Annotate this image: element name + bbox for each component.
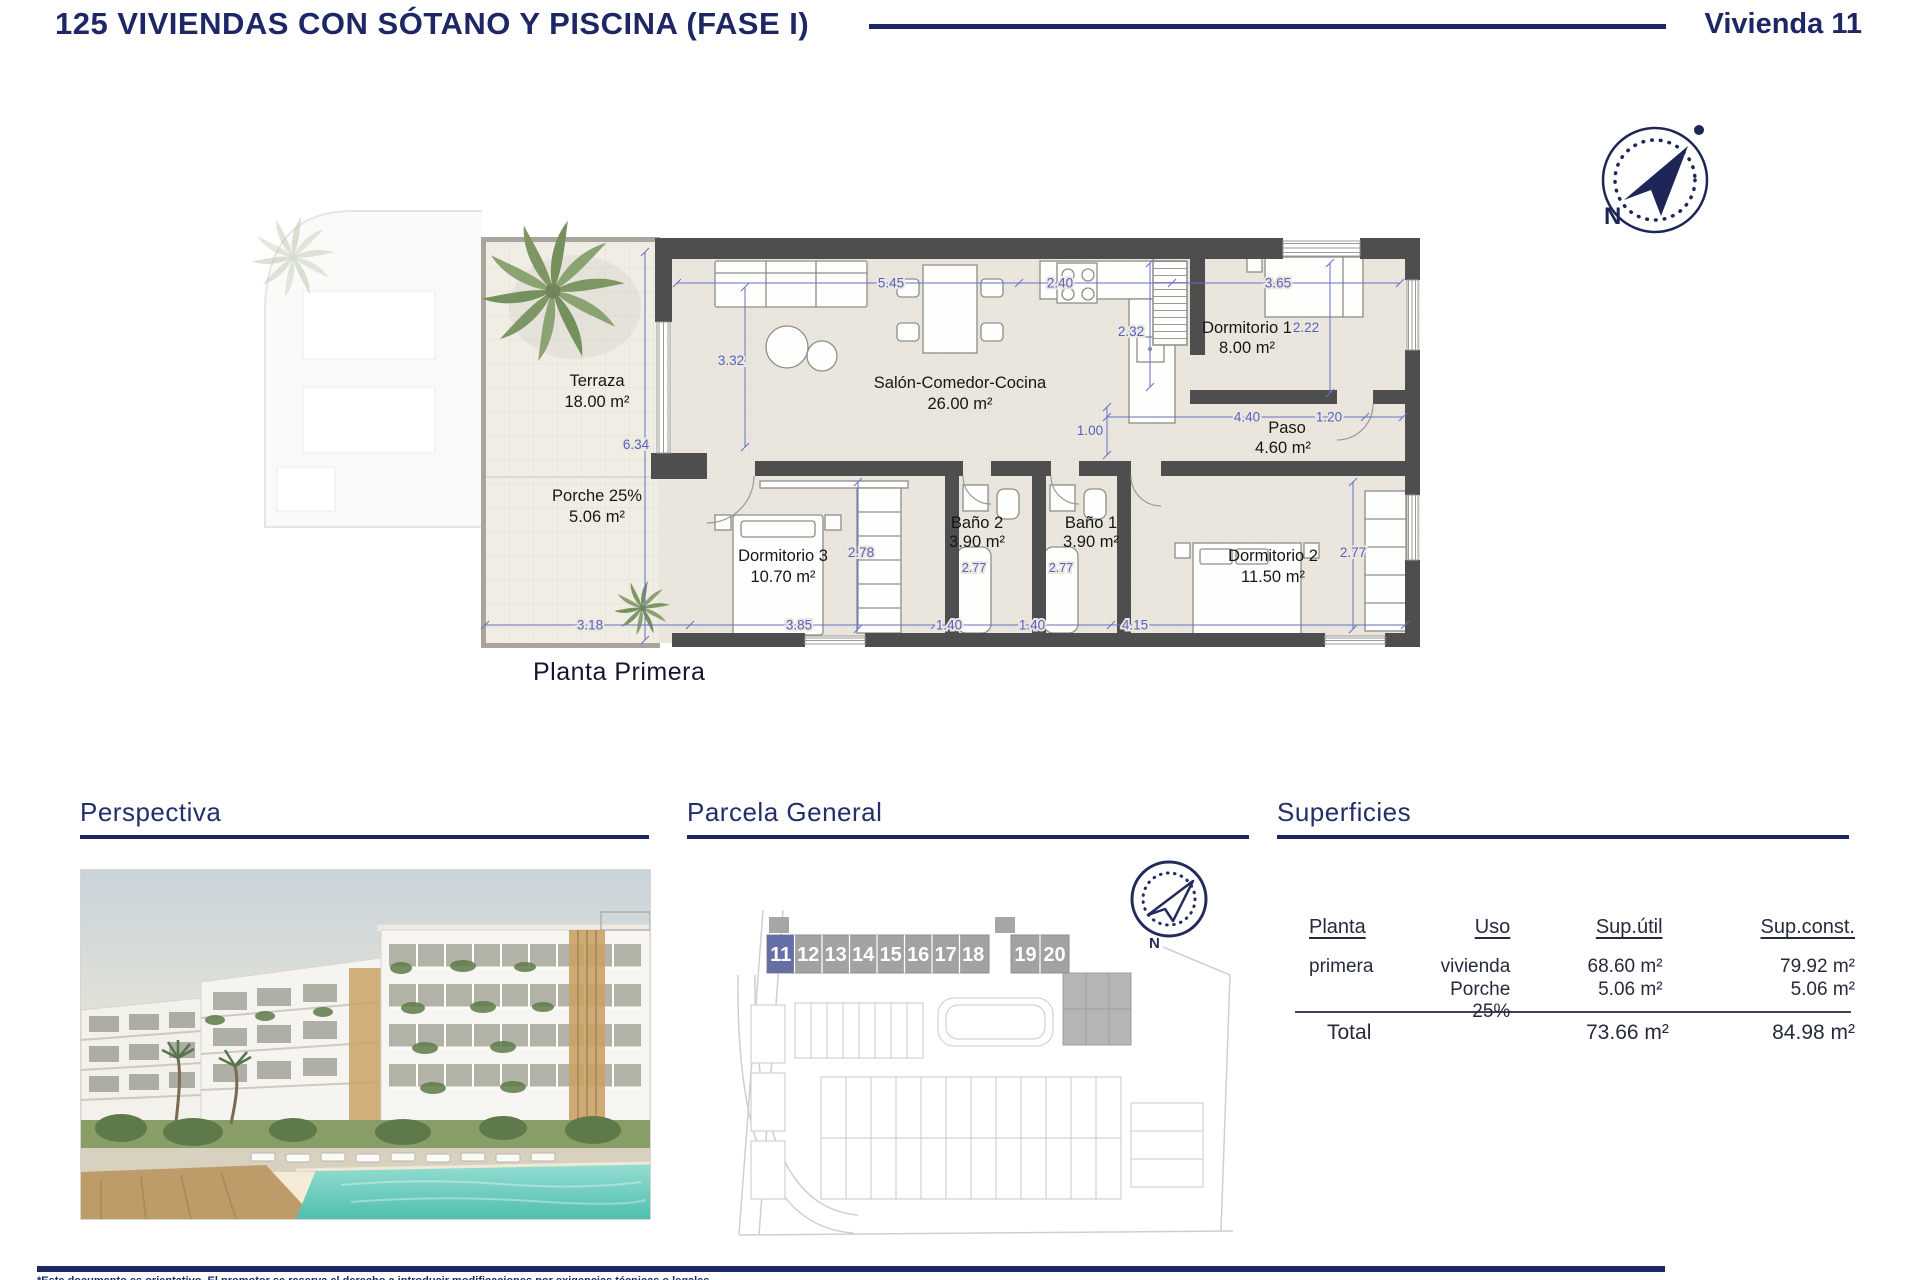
room-label-dorm1: Dormitorio 1 — [1202, 319, 1292, 337]
room-area-dorm3: 10.70 m² — [750, 568, 816, 586]
unit-number: 17 — [935, 944, 957, 966]
compass-n: N — [1149, 935, 1160, 952]
room-area-terraza: 18.00 m² — [564, 393, 630, 411]
dim-label: 1.20 — [1316, 410, 1342, 425]
dim-label: 4.40 — [1234, 410, 1260, 425]
room-area-porche: 5.06 m² — [569, 508, 625, 526]
disclaimer: *Este documento es orientativo. El promo… — [37, 1275, 709, 1280]
section-title-superficies: Superficies — [1277, 797, 1411, 828]
page-title: 125 VIVIENDAS CON SÓTANO Y PISCINA (FASE… — [55, 6, 809, 42]
unit-number: 11 — [770, 944, 791, 966]
unit-number: 18 — [962, 944, 984, 966]
table-separator — [1295, 1011, 1851, 1013]
dim-label: 2.77 — [1340, 545, 1366, 560]
room-area-dorm2: 11.50 m² — [1241, 568, 1305, 586]
col-planta: Planta — [1295, 916, 1412, 939]
surface-table: Planta Uso Sup.útil Sup.const. primera v… — [1295, 916, 1855, 1045]
room-area-salon: 26.00 m² — [927, 395, 993, 413]
unit-numbers: 11 12 13 14 15 16 17 18 19 20 — [770, 944, 1066, 966]
room-label-salon: Salón-Comedor-Cocina — [874, 374, 1047, 392]
col-uso: Uso — [1412, 916, 1510, 939]
dim-label: 1.40 — [1019, 618, 1045, 633]
room-area-bano2: 3.90 m² — [949, 533, 1005, 551]
north-arrow-icon — [1624, 146, 1688, 216]
dim-label: 2.32 — [1118, 324, 1144, 339]
unit-number: 14 — [852, 944, 875, 966]
dim-label: 2.77 — [962, 561, 986, 575]
dim-label: 3.32 — [718, 353, 744, 368]
col-util: Sup.útil — [1510, 916, 1662, 939]
room-area-dorm1: 8.00 m² — [1219, 339, 1275, 357]
room-label-bano2: Baño 2 — [951, 514, 1003, 532]
dim-label: 2.40 — [1047, 276, 1073, 291]
site-plan: 11 12 13 14 15 16 17 18 19 20 N — [733, 855, 1243, 1245]
unit-label: Vivienda 11 — [1678, 8, 1862, 41]
section-rule — [80, 835, 649, 839]
unit-number: 12 — [797, 944, 819, 966]
dim-label: 2.78 — [848, 545, 874, 560]
plan-sheet: 125 VIVIENDAS CON SÓTANO Y PISCINA (FASE… — [0, 0, 1920, 1280]
compass-n: N — [1604, 203, 1621, 230]
floor-plan: 5.45 2.40 3.65 3.32 2.32 6.34 2.22 4.40 … — [245, 195, 1425, 670]
room-label-paso: Paso — [1268, 419, 1306, 437]
dim-label: 2.22 — [1293, 320, 1319, 335]
header-rule — [869, 24, 1666, 29]
dim-label: 6.34 — [623, 437, 650, 452]
room-area-paso: 4.60 m² — [1255, 439, 1311, 457]
table-header-row: Planta Uso Sup.útil Sup.const. — [1295, 916, 1855, 956]
unit-number: 16 — [907, 944, 929, 966]
perspective-render — [80, 869, 651, 1220]
dim-label: 5.45 — [878, 276, 904, 291]
col-const: Sup.const. — [1663, 916, 1855, 939]
footer-rule — [37, 1266, 1665, 1272]
section-title-parcela: Parcela General — [687, 797, 882, 828]
dim-label: 3.18 — [577, 618, 603, 633]
room-label-porche: Porche 25% — [552, 487, 642, 505]
table-row: primera vivienda 68.60 m² 79.92 m² — [1295, 956, 1855, 979]
dim-label: 1.40 — [936, 618, 962, 633]
room-area-bano1: 3.90 m² — [1063, 533, 1119, 551]
section-rule — [687, 835, 1249, 839]
neighbour-unit — [252, 211, 482, 527]
plan-caption: Planta Primera — [533, 658, 705, 687]
section-title-perspectiva: Perspectiva — [80, 797, 221, 828]
unit-number: 13 — [825, 944, 847, 966]
dim-label: 2.77 — [1049, 561, 1073, 575]
compass-small-icon: N — [1132, 862, 1206, 952]
unit-number: 19 — [1014, 944, 1036, 966]
unit-number: 20 — [1043, 944, 1065, 966]
room-label-bano1: Baño 1 — [1065, 514, 1117, 532]
dim-label: 4.15 — [1122, 618, 1148, 633]
unit-number: 15 — [880, 944, 902, 966]
dim-label: 1.00 — [1077, 423, 1103, 438]
dim-label: 3.65 — [1265, 276, 1291, 291]
room-label-dorm2: Dormitorio 2 — [1228, 547, 1318, 565]
table-row: Porche 25% 5.06 m² 5.06 m² — [1295, 979, 1855, 1002]
room-label-terraza: Terraza — [569, 372, 625, 390]
table-total-row: Total 73.66 m² 84.98 m² — [1295, 1021, 1855, 1045]
section-rule — [1277, 835, 1849, 839]
room-label-dorm3: Dormitorio 3 — [738, 547, 828, 565]
dim-label: 3.85 — [786, 618, 812, 633]
compass-icon: N — [1596, 118, 1716, 238]
